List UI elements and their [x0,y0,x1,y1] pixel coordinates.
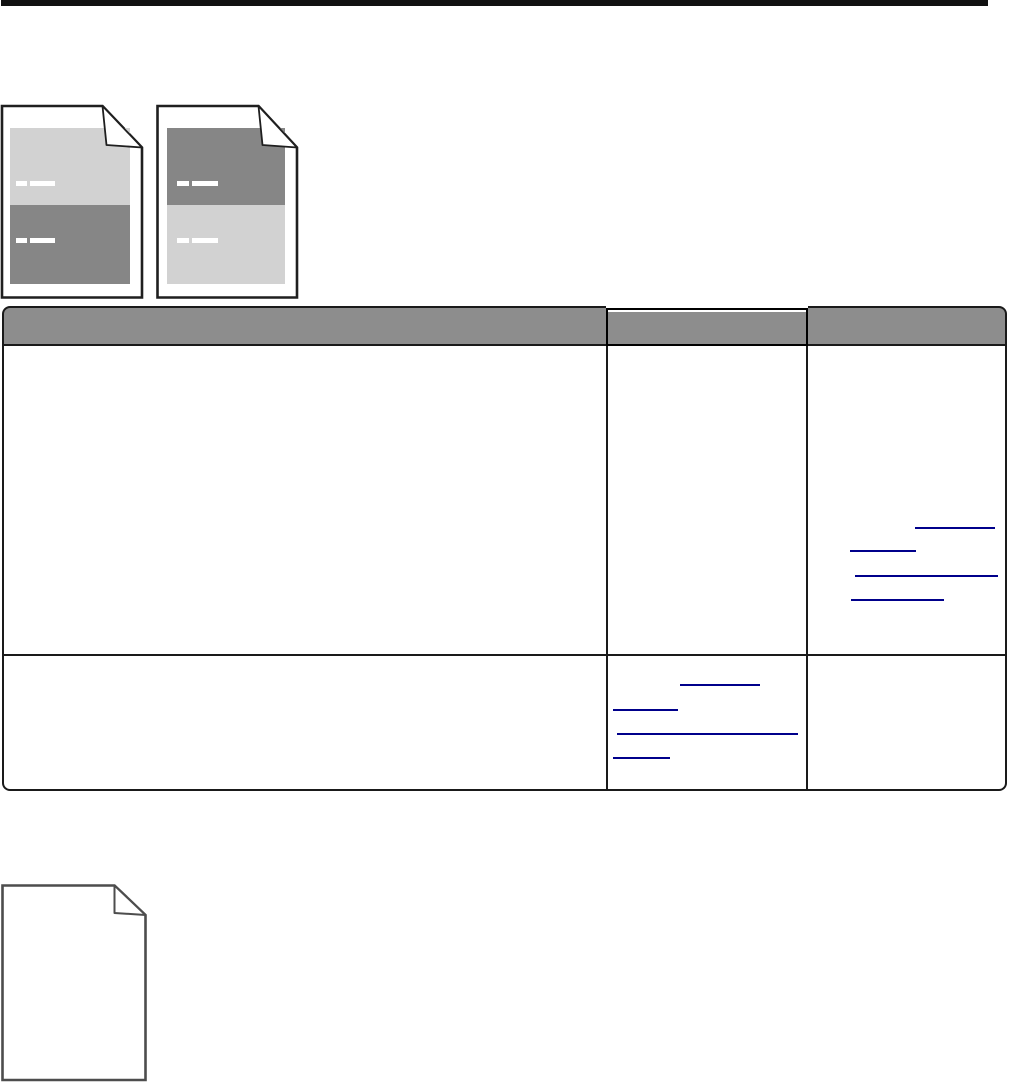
table-cell-r2c1 [4,658,604,788]
table-cell-r1c3 [810,348,1005,652]
row-separator [2,654,1007,656]
hyperlink-underline[interactable] [851,599,944,601]
printed-text-dash [177,238,189,243]
folded-corner-icon [115,886,146,916]
print-band-dark [10,205,130,284]
printed-text-dash [16,181,27,186]
hyperlink-underline[interactable] [617,733,798,735]
print-sample-left-figure [0,104,146,300]
folded-corner-icon [259,106,298,148]
print-band-light [167,205,285,284]
hyperlink-underline[interactable] [855,575,998,577]
document-page [0,0,1010,1086]
printed-text-dash [30,238,55,243]
table-header-cell-2 [606,308,808,346]
printed-text-dash [16,238,27,243]
column-separator [806,346,808,791]
hyperlink-underline[interactable] [680,684,760,686]
printed-text-dash [177,181,189,186]
hyperlink-underline[interactable] [915,527,995,529]
table-cell-r1c2 [608,348,804,652]
table-cell-r1c1 [4,348,604,652]
table-cell-r2c2 [608,658,804,788]
folded-corner-icon [103,106,143,148]
print-sample-right-figure [155,104,301,300]
printed-text-dash [30,181,55,186]
page-outline [3,886,146,1081]
hyperlink-underline[interactable] [613,757,670,759]
hyperlink-underline[interactable] [613,709,678,711]
table-header-cell-1 [2,306,606,346]
table-cell-r2c3 [810,658,1005,788]
top-rule [1,0,988,6]
blank-page-figure [0,883,150,1083]
table-header-cell-3 [808,306,1007,346]
hyperlink-underline[interactable] [850,550,916,552]
printed-text-dash [192,181,218,186]
printed-text-dash [192,238,218,243]
